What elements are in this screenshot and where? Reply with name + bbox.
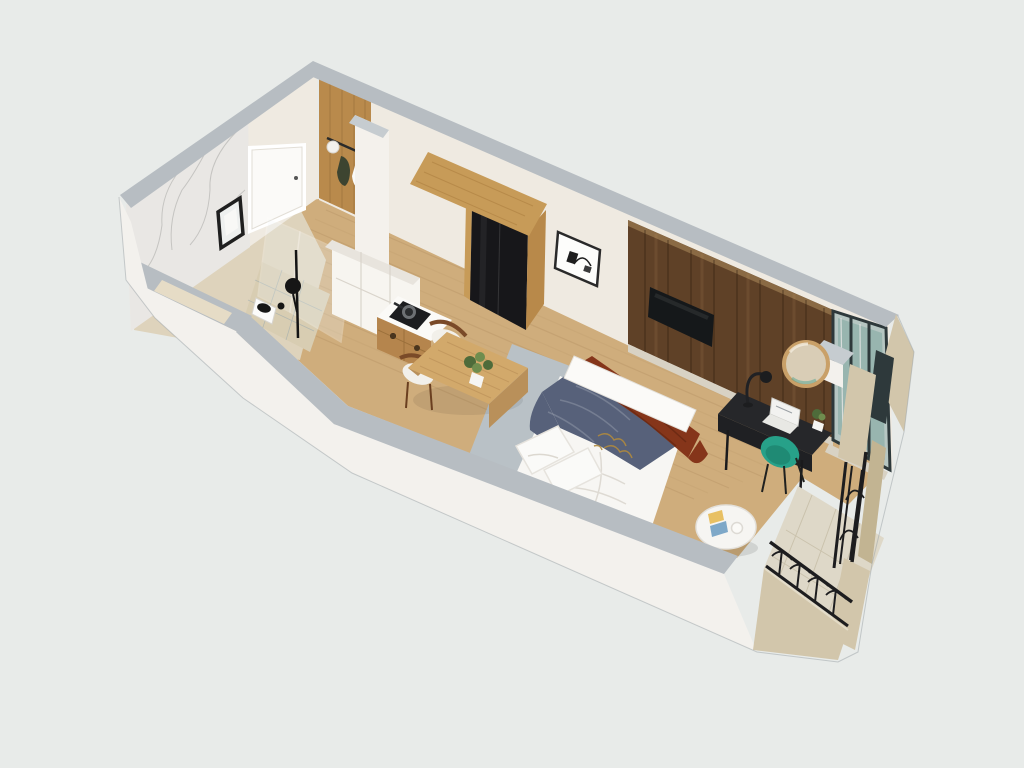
- drawer-hole-2: [414, 345, 420, 351]
- wardrobe-reflection: [482, 214, 484, 308]
- cup: [732, 523, 743, 534]
- round-mirror: [784, 342, 828, 386]
- round-mirror-glass: [784, 342, 828, 386]
- lamp-base: [743, 403, 753, 408]
- floorplan-render: [0, 0, 1024, 768]
- door-handle: [294, 176, 298, 180]
- plant-leaf-4: [472, 363, 482, 373]
- pan-inner: [405, 308, 413, 316]
- plant-leaf-2: [475, 352, 485, 362]
- hat-on-hook: [327, 141, 339, 153]
- drawer-hole: [390, 333, 396, 339]
- lamp-head: [760, 371, 772, 383]
- floorplan-svg: [0, 0, 1024, 768]
- hand-shower: [278, 303, 285, 310]
- desk-plant-leaves-2: [819, 414, 826, 421]
- shower-head: [285, 278, 301, 294]
- plant-leaf-3: [483, 360, 493, 370]
